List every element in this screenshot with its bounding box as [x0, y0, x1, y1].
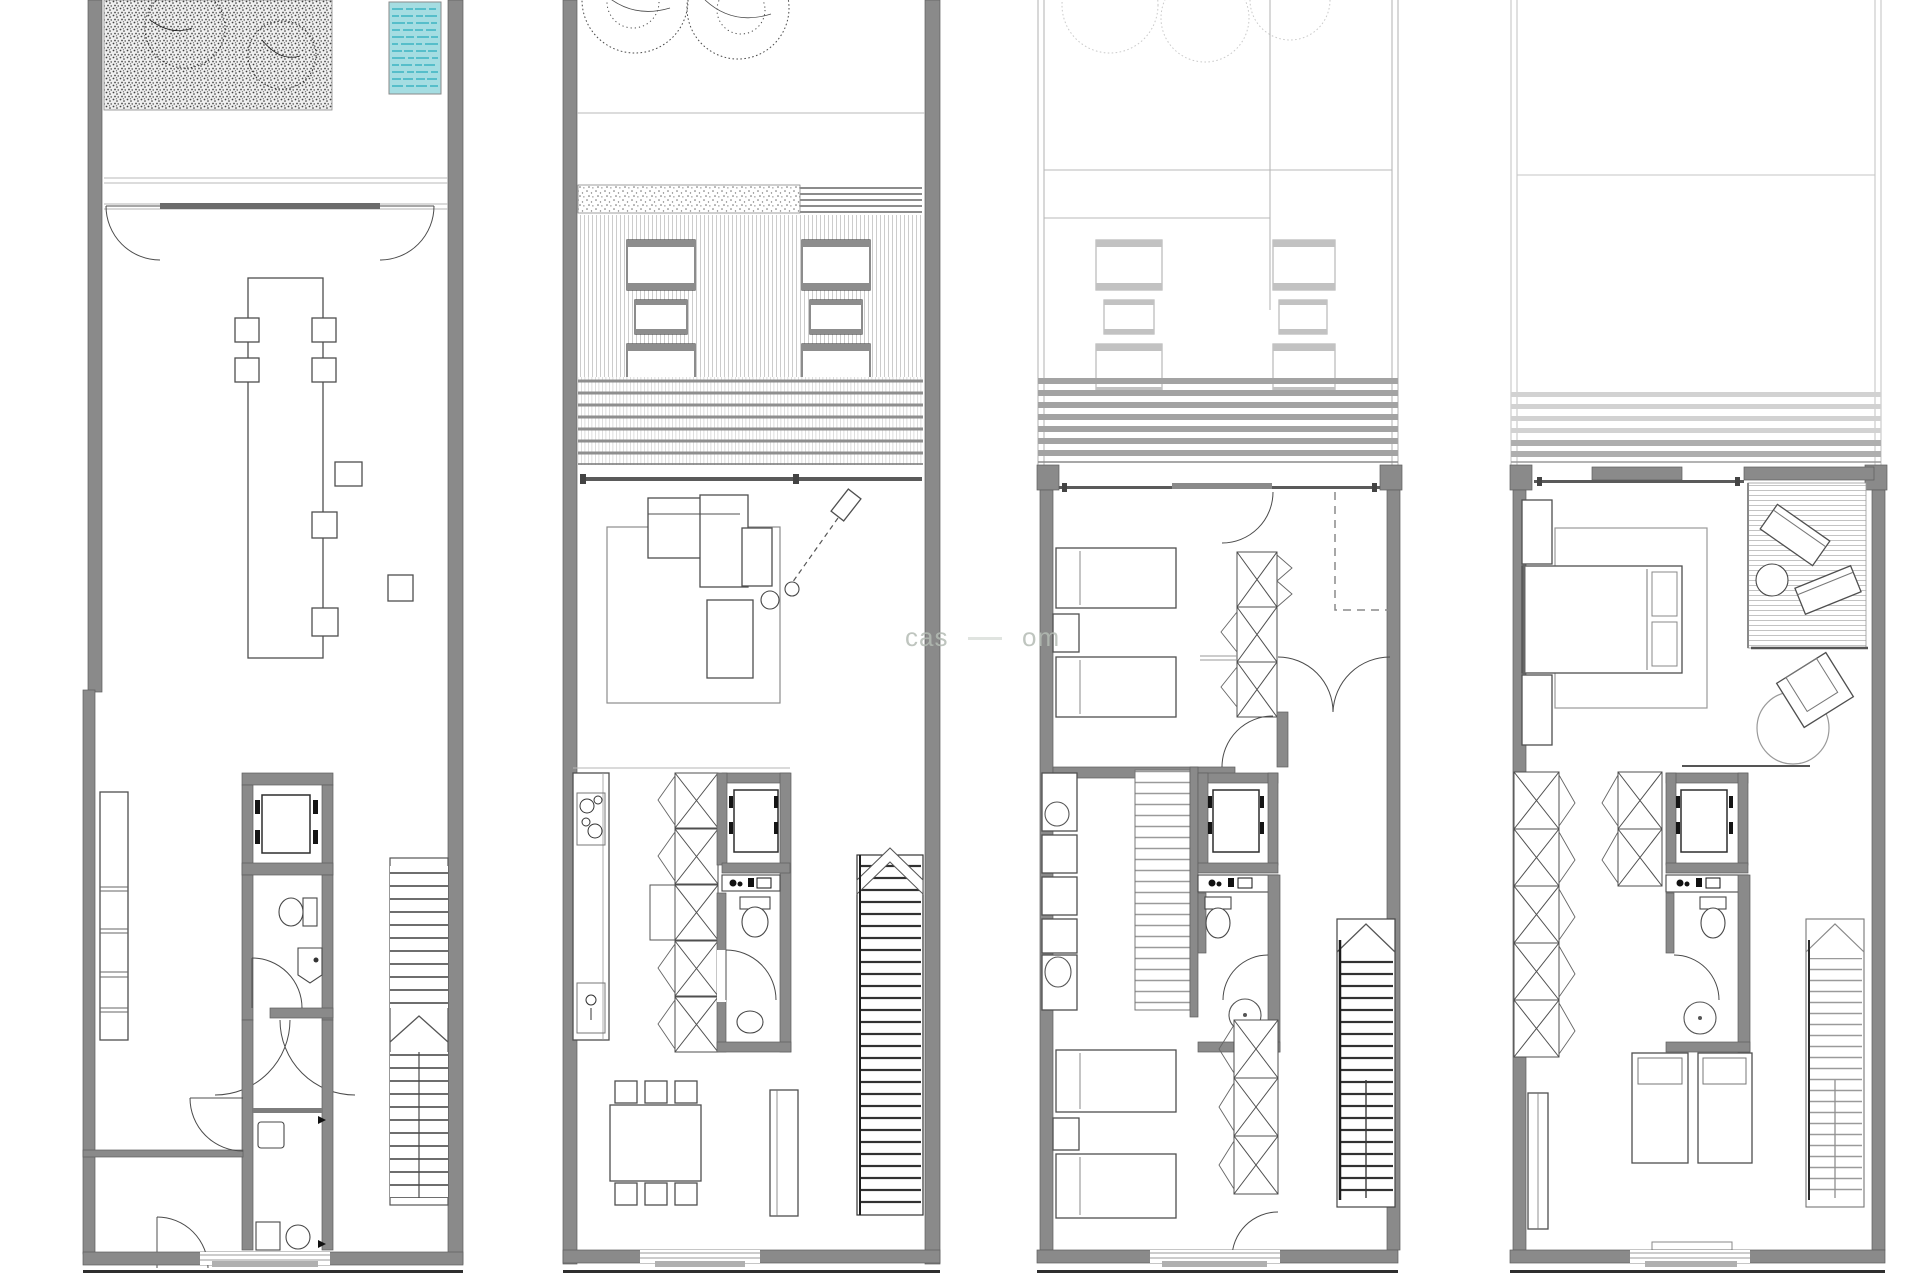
floor-plans-canvas [0, 0, 1920, 1280]
washer-drum-icon [286, 1225, 310, 1249]
lounge-group-light [1096, 240, 1162, 394]
side-table-icon [761, 591, 779, 609]
sliding-glass-wall [580, 474, 922, 484]
floor-plan-sheet: cas om [0, 0, 1920, 1280]
plan1-facade [83, 1252, 463, 1273]
private-terrace [1748, 483, 1868, 648]
staircase [1806, 919, 1864, 1207]
pillow [1652, 622, 1677, 666]
louver-corner [800, 188, 922, 212]
toilet-icon [1206, 908, 1230, 938]
door-arc [1222, 716, 1273, 767]
washing-machine-icon [256, 1222, 280, 1250]
entry-door-left [106, 206, 160, 260]
timber-deck [578, 215, 923, 394]
trees [582, 0, 789, 59]
fan-double-door [215, 1020, 355, 1095]
sliding-window [1059, 483, 1380, 492]
toilet-icon [303, 898, 317, 926]
wardrobe-column-2 [1602, 772, 1662, 886]
plan-4 [1510, 0, 1887, 1273]
elevator [1666, 773, 1748, 873]
hall-cabinets [1042, 773, 1077, 1010]
toilet-icon [742, 907, 768, 937]
laundry [242, 1020, 333, 1250]
lounge-group-light [1273, 240, 1335, 394]
wardrobe [1237, 552, 1277, 717]
dining-area [610, 1081, 798, 1216]
staircase [390, 858, 448, 1205]
floor-lamp-icon [785, 489, 861, 596]
louver-band-light [1511, 392, 1881, 462]
pillow [1652, 572, 1677, 616]
elevator-car [1213, 790, 1259, 852]
staircase [857, 848, 923, 1215]
room-divider-wall [83, 1150, 243, 1157]
wardrobe-column [650, 773, 718, 1052]
bidet-icon [737, 1011, 763, 1033]
plan2-left-wall [563, 0, 577, 1264]
door-arc [1222, 492, 1273, 543]
lounge-group [802, 240, 870, 394]
entry-wall [160, 203, 380, 209]
nightstand [1522, 500, 1552, 564]
bed [1632, 1053, 1688, 1163]
toilet-icon [1701, 908, 1725, 938]
plan-3 [1037, 0, 1402, 1273]
sink-icon [298, 948, 322, 983]
stair-flight [1135, 767, 1198, 1017]
twin-beds [1632, 1053, 1752, 1163]
watermark-fragment-left: cas [905, 622, 948, 653]
coffee-table [707, 600, 753, 678]
watermark-fragment-right: om [1022, 622, 1060, 653]
plan-2 [563, 0, 940, 1273]
louver-band [1038, 378, 1398, 462]
plan-1 [83, 0, 463, 1273]
pool [389, 2, 441, 94]
plan4-right-wall [1872, 490, 1885, 1250]
double-swing-doors [1278, 657, 1390, 712]
wardrobe [1234, 1020, 1278, 1194]
bed [1056, 657, 1176, 717]
plan4-facade [1510, 1242, 1885, 1273]
dining-table [610, 1105, 701, 1181]
living-room [607, 489, 861, 703]
bed [1056, 1050, 1176, 1112]
toilet-icon [1205, 897, 1231, 909]
plan2-facade [563, 1250, 940, 1273]
bedroom-lower [1053, 1020, 1278, 1258]
entry-door-right [380, 206, 434, 260]
louver-band [578, 377, 923, 465]
storage-box [650, 885, 675, 940]
toilet-icon [1700, 897, 1726, 909]
elevator-car [734, 790, 778, 852]
nightstand [1522, 675, 1552, 745]
bedroom-upper [1053, 492, 1398, 717]
elevator-car [1681, 790, 1727, 852]
bed [1698, 1053, 1752, 1163]
wall-shelving [100, 792, 128, 1040]
wc-room [242, 875, 333, 1020]
sideboard [770, 1090, 798, 1216]
staircase [1337, 919, 1395, 1207]
elevator-car [262, 795, 310, 853]
plan3-facade [1037, 1250, 1398, 1273]
plan1-left-wall [88, 0, 102, 692]
plan1-right-wall [448, 0, 463, 1264]
nightstand [1053, 1118, 1079, 1150]
elevator [1198, 773, 1278, 873]
toilet-icon [279, 898, 303, 926]
armchair-icon [1777, 653, 1854, 728]
garden-hatch [104, 0, 332, 110]
sofa [648, 495, 772, 587]
elevator [242, 773, 333, 875]
gravel-strip [578, 185, 800, 213]
window-bench [1652, 1242, 1732, 1250]
bed [1056, 1154, 1176, 1218]
bathroom [1666, 875, 1750, 1052]
watermark-dash [968, 637, 1002, 640]
faint-trees [1062, 0, 1330, 62]
lounge-group [627, 240, 695, 394]
washing-machine-icon [258, 1122, 284, 1148]
room-door [190, 1098, 243, 1151]
round-table-icon [1756, 564, 1788, 596]
bed [1056, 548, 1176, 608]
wardrobe-column [1514, 772, 1575, 1057]
